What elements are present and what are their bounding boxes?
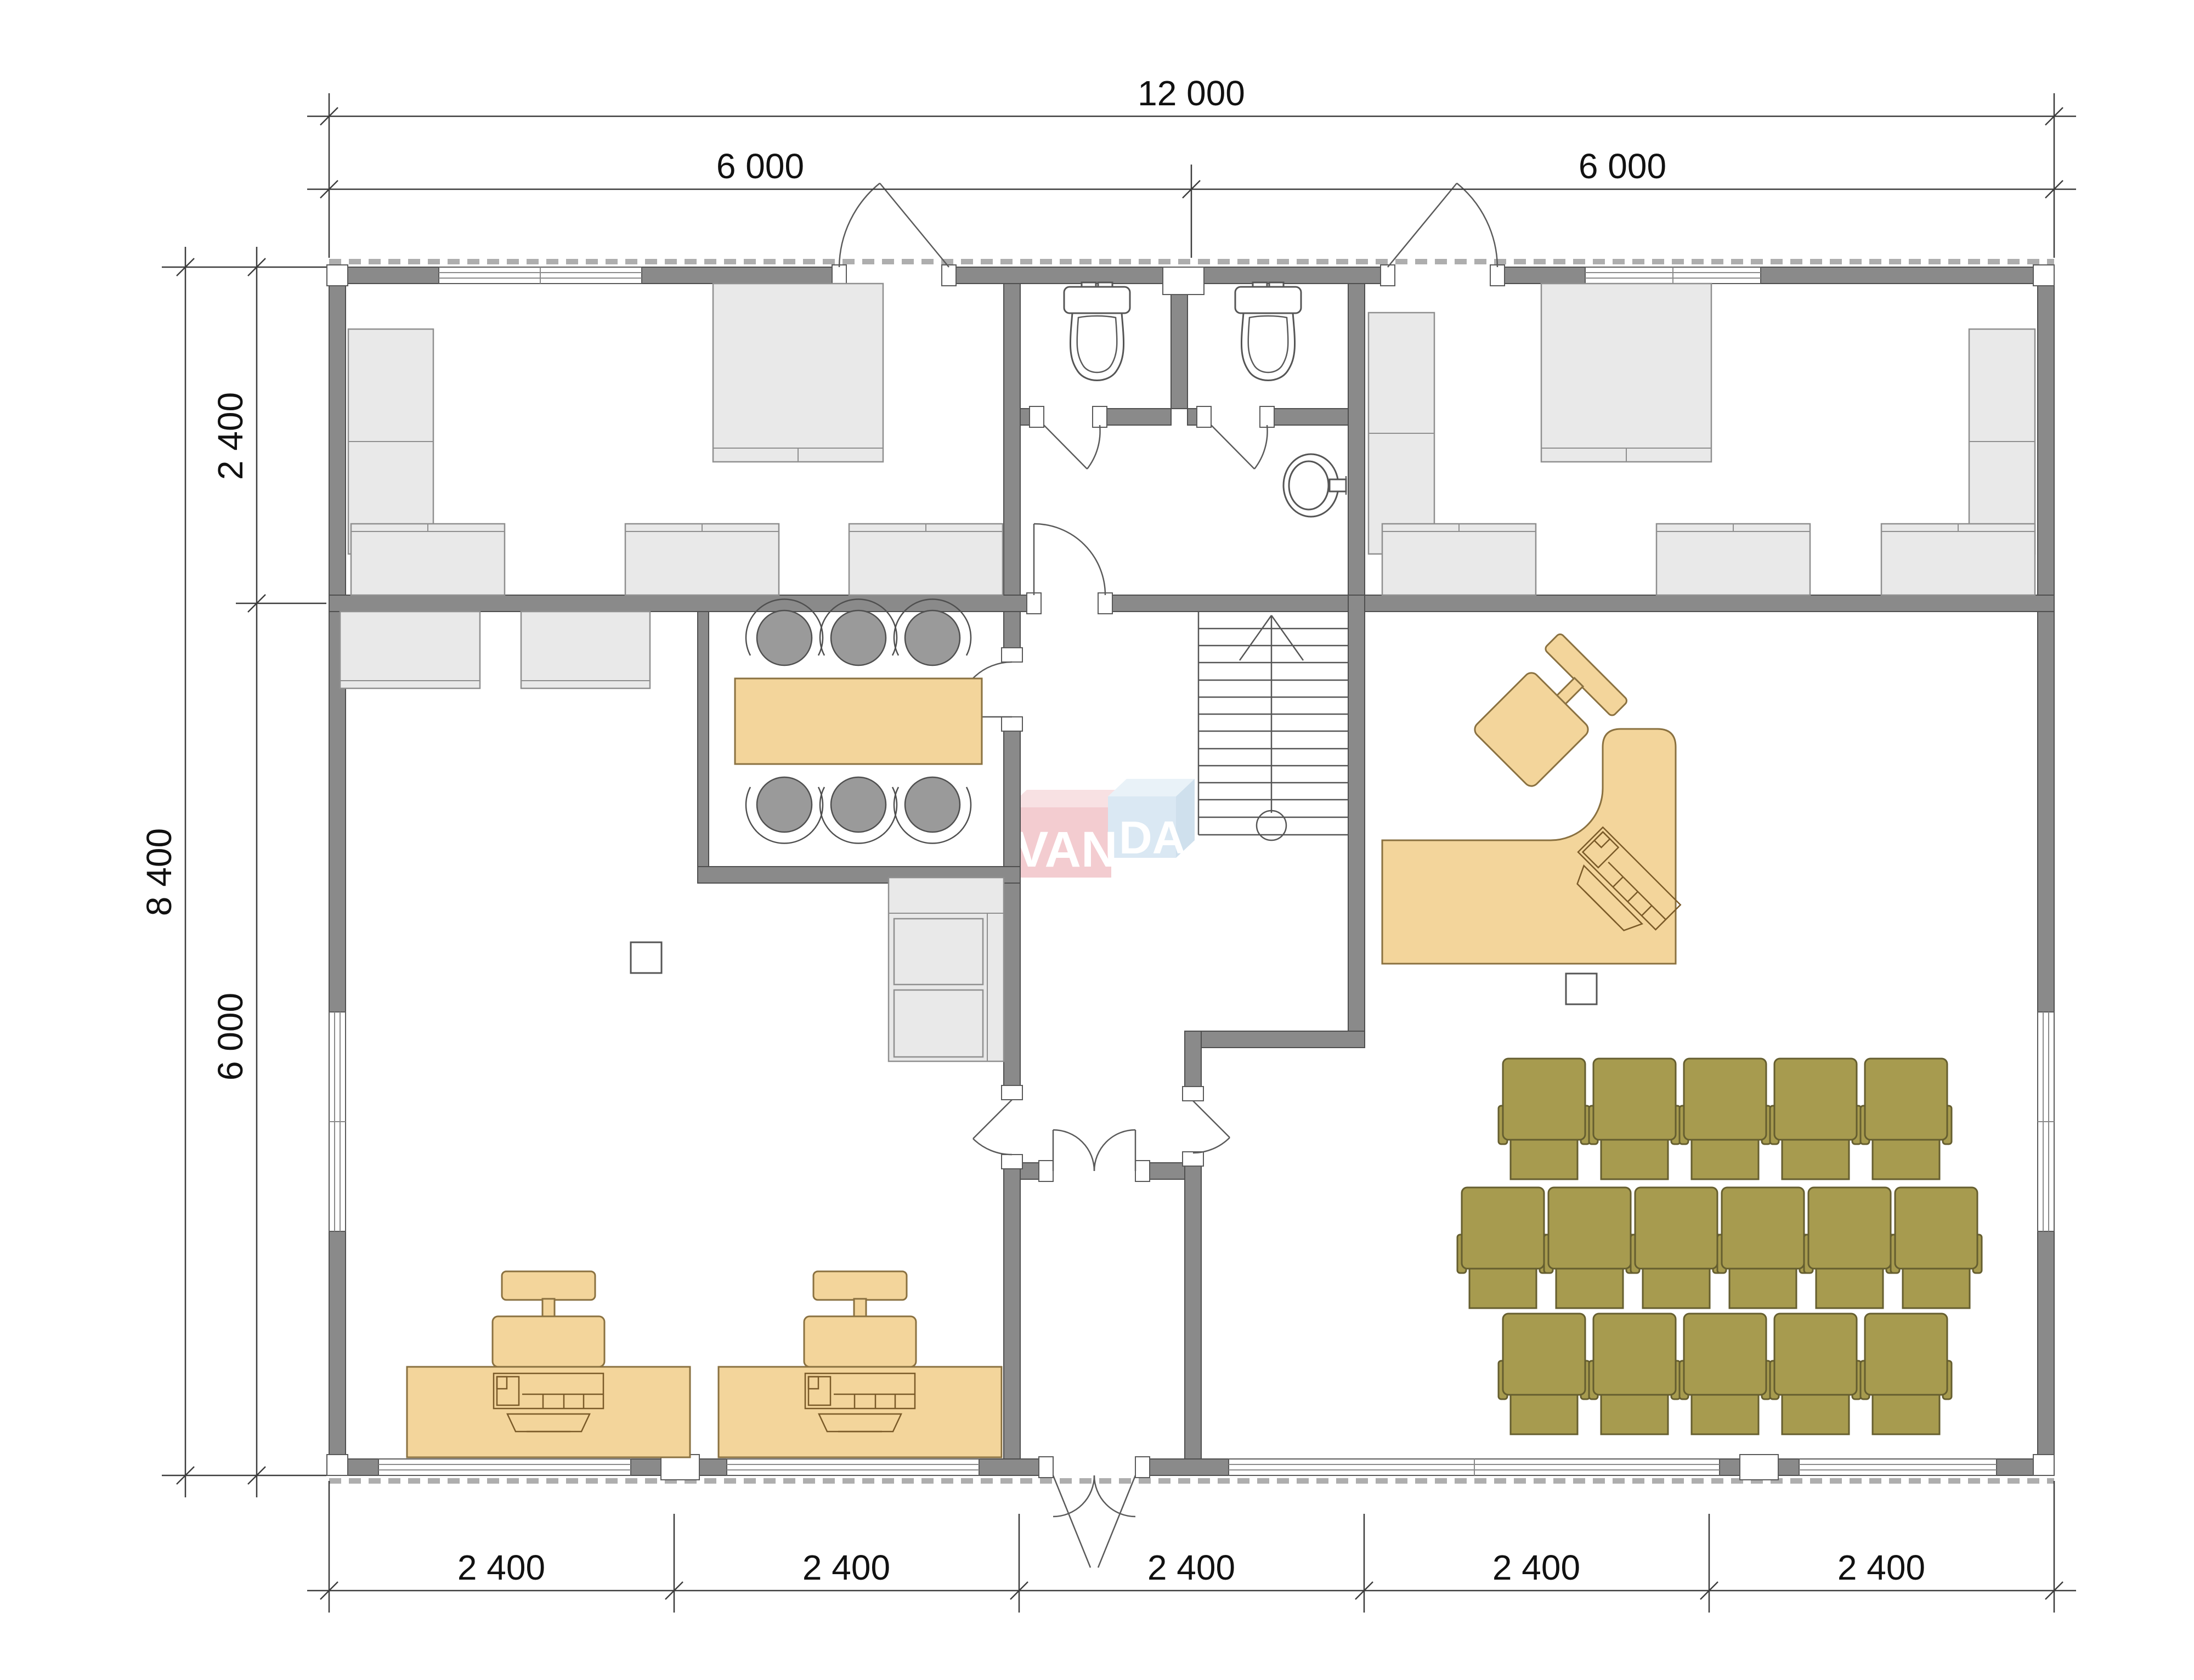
dim-left-seg-1: 2 400 [211,392,250,480]
dim-bottom-3: 2 400 [1147,1548,1235,1587]
desk [1656,524,1810,595]
kitchen-unit [889,878,1004,1061]
toilet-2 [1235,282,1301,381]
cabinet [1541,284,1711,462]
desk [849,524,1003,595]
door-right-hall [1193,1101,1230,1153]
office-top-left [348,284,1003,595]
column-left [631,942,661,973]
column-right [1566,974,1597,1004]
dim-top-half-1: 6 000 [716,146,804,186]
meeting-room [735,599,982,844]
window-top-right [1585,267,1761,284]
dim-bottom-1: 2 400 [457,1548,545,1587]
audience-chairs-row-3 [1499,1314,1952,1434]
dim-bottom-5: 2 400 [1837,1548,1925,1587]
window-bottom-1 [378,1459,631,1475]
right-hall [1382,632,1982,1434]
door-entrance-double [1053,1475,1135,1568]
desk [1881,524,2035,595]
workstation-2 [719,1271,1002,1457]
window-bottom-2 [727,1459,979,1475]
window-right [2038,1012,2054,1231]
window-bottom-4 [1799,1459,1997,1475]
workstation-1 [407,1271,690,1457]
dim-top-half-2: 6 000 [1579,146,1666,186]
toilet-1 [1064,282,1130,381]
window-left [329,1012,346,1231]
meeting-table [735,678,982,764]
door-exterior-top-left [839,183,949,267]
staircase [1198,612,1348,840]
door-left-office [973,1100,1012,1155]
door-wc-stall-2 [1211,425,1268,469]
wc-fixtures [1064,282,1346,517]
sideboard [521,612,650,688]
desk [351,524,505,595]
audience-chairs-row-1 [1499,1059,1952,1179]
reception-desk [1382,632,1681,964]
dim-left-seg-2: 6 000 [211,993,250,1081]
cabinet [713,284,883,462]
window-bottom-3 [1229,1459,1720,1475]
office-top-right [1369,284,2035,595]
watermark-text: VAN DA [1015,812,1185,878]
audience-chairs-row-2 [1457,1187,1982,1308]
vanda-watermark-logo: VAN DA [1008,779,1195,878]
desk [1382,524,1536,595]
desk [625,524,779,595]
floor-plan: VAN DA [0,0,2194,1680]
dim-bottom-4: 2 400 [1492,1548,1580,1587]
sink [1283,454,1346,517]
dim-top-total: 12 000 [1138,73,1245,113]
dim-left-total: 8 400 [139,828,179,916]
window-top-left [439,267,642,284]
door-exterior-top-right [1388,183,1497,267]
sideboard [340,612,480,688]
dim-bottom-2: 2 400 [802,1548,890,1587]
door-wc-lobby [1034,524,1105,595]
meeting-chairs-bottom [746,777,971,843]
door-vestibule-double [1053,1130,1135,1171]
door-wc-stall-1 [1044,425,1100,469]
